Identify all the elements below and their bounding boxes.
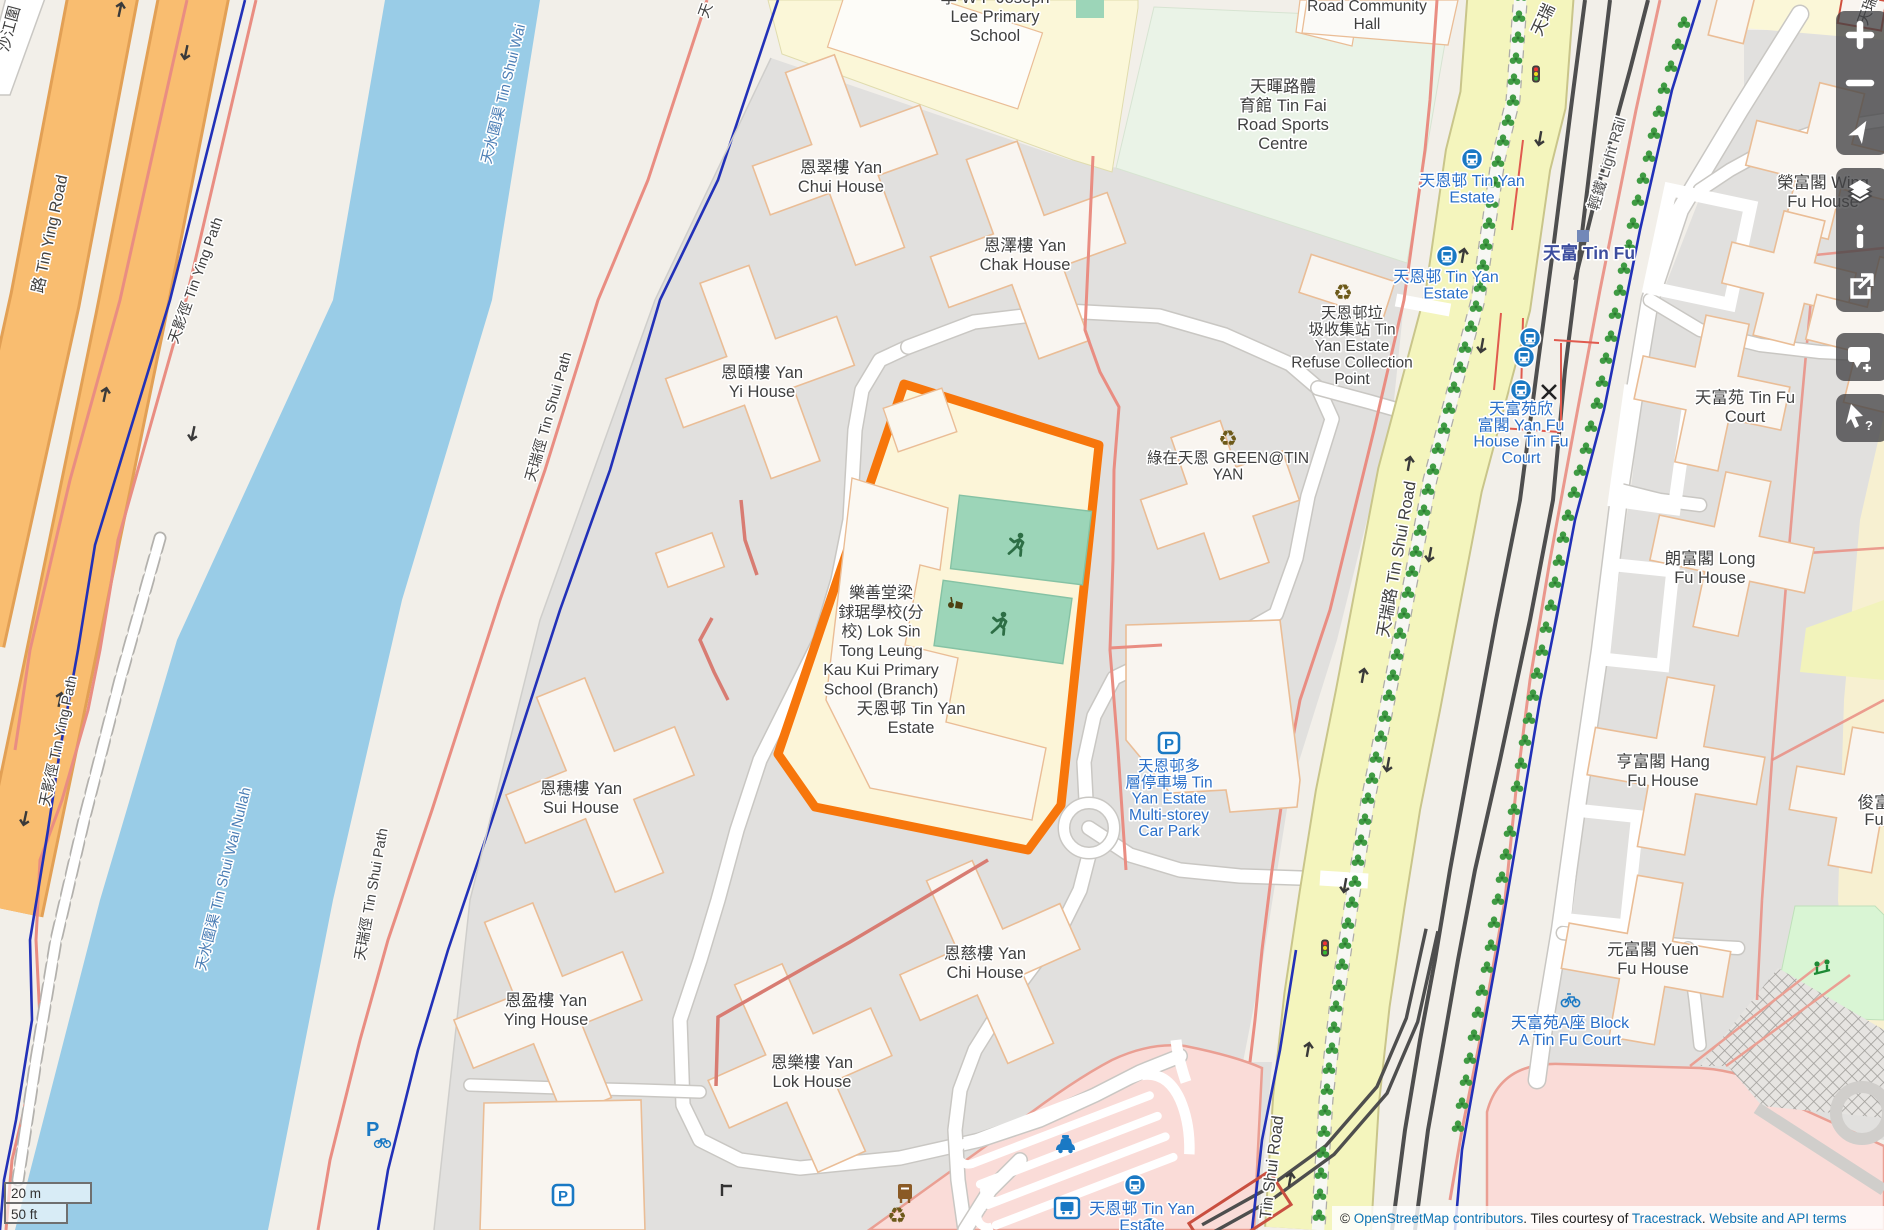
- svg-text:Road Community: Road Community: [1307, 0, 1427, 15]
- svg-text:50 ft: 50 ft: [11, 1207, 38, 1222]
- svg-text:Fu: Fu: [1864, 811, 1883, 829]
- svg-text:天暉路體: 天暉路體: [1250, 77, 1316, 96]
- svg-text:元富閣 Yuen: 元富閣 Yuen: [1607, 940, 1699, 959]
- svg-text:恩慈樓 Yan: 恩慈樓 Yan: [944, 944, 1026, 963]
- svg-text:Court: Court: [1501, 450, 1541, 467]
- svg-text:天富 Tin Fu: 天富 Tin Fu: [1543, 243, 1635, 263]
- svg-text:學 W F Joseph: 學 W F Joseph: [940, 0, 1049, 7]
- svg-text:Tong Leung: Tong Leung: [839, 643, 923, 660]
- svg-text:Estate: Estate: [1423, 286, 1468, 303]
- svg-text:恩澤樓 Yan: 恩澤樓 Yan: [984, 236, 1066, 255]
- svg-text:Point: Point: [1334, 371, 1370, 388]
- svg-text:Yan Estate: Yan Estate: [1315, 338, 1390, 355]
- svg-text:Fu House: Fu House: [1617, 960, 1689, 978]
- svg-text:天恩邨 Tin Yan: 天恩邨 Tin Yan: [1089, 1200, 1195, 1218]
- svg-text:恩盈樓 Yan: 恩盈樓 Yan: [505, 991, 587, 1010]
- svg-text:♻: ♻: [1333, 280, 1353, 305]
- svg-text:20 m: 20 m: [11, 1186, 41, 1201]
- svg-text:Estate: Estate: [888, 719, 935, 737]
- svg-text:Sui House: Sui House: [543, 799, 619, 817]
- svg-text:Lee Primary: Lee Primary: [951, 8, 1041, 26]
- svg-text:Multi-storey: Multi-storey: [1129, 807, 1209, 824]
- svg-text:♻: ♻: [1218, 426, 1238, 451]
- svg-text:俊富: 俊富: [1858, 793, 1884, 812]
- svg-text:Chi House: Chi House: [946, 964, 1023, 982]
- svg-text:?: ?: [1865, 418, 1873, 433]
- svg-text:Car Park: Car Park: [1138, 823, 1199, 840]
- svg-text:Hall: Hall: [1354, 16, 1381, 33]
- svg-text:層停車場 Tin: 層停車場 Tin: [1125, 773, 1212, 791]
- svg-text:Estate: Estate: [1119, 1218, 1164, 1230]
- svg-text:House Tin Fu: House Tin Fu: [1473, 434, 1568, 451]
- svg-text:天恩邨 Tin Yan: 天恩邨 Tin Yan: [857, 699, 966, 718]
- svg-text:Road Sports: Road Sports: [1237, 116, 1329, 134]
- svg-text:校) Lok Sin: 校) Lok Sin: [841, 623, 920, 641]
- svg-text:銶琚學校(分: 銶琚學校(分: [838, 603, 923, 621]
- svg-text:圾收集站 Tin: 圾收集站 Tin: [1308, 321, 1395, 339]
- svg-text:Fu House: Fu House: [1627, 772, 1699, 790]
- svg-text:♻: ♻: [887, 1203, 907, 1228]
- svg-text:富閣 Yan Fu: 富閣 Yan Fu: [1478, 416, 1565, 434]
- svg-text:Estate: Estate: [1449, 190, 1494, 207]
- svg-text:天恩邨多: 天恩邨多: [1138, 757, 1200, 775]
- svg-text:P: P: [366, 1119, 379, 1141]
- svg-text:© OpenStreetMap contributors.: © OpenStreetMap contributors. Tiles cour…: [1340, 1211, 1847, 1226]
- svg-text:School (Branch): School (Branch): [824, 682, 939, 699]
- svg-text:School: School: [970, 27, 1020, 45]
- svg-text:Fu House: Fu House: [1674, 569, 1746, 587]
- svg-text:朗富閣 Long: 朗富閣 Long: [1665, 549, 1756, 568]
- svg-text:YAN: YAN: [1213, 467, 1244, 484]
- svg-text:Chak House: Chak House: [980, 256, 1071, 274]
- svg-text:Court: Court: [1725, 408, 1766, 426]
- svg-text:恩穗樓 Yan: 恩穗樓 Yan: [540, 779, 622, 798]
- svg-text:Centre: Centre: [1258, 135, 1308, 153]
- svg-text:恩翠樓 Yan: 恩翠樓 Yan: [800, 158, 882, 177]
- svg-text:A Tin Fu Court: A Tin Fu Court: [1519, 1032, 1622, 1049]
- svg-text:天恩邨 Tin Yan: 天恩邨 Tin Yan: [1419, 172, 1525, 190]
- svg-text:恩頤樓 Yan: 恩頤樓 Yan: [721, 363, 803, 382]
- svg-text:Yan Estate: Yan Estate: [1132, 791, 1207, 808]
- svg-text:天恩邨垃: 天恩邨垃: [1321, 304, 1383, 322]
- svg-text:天富苑欣: 天富苑欣: [1489, 400, 1553, 418]
- svg-text:樂善堂梁: 樂善堂梁: [849, 584, 913, 602]
- svg-text:亨富閣 Hang: 亨富閣 Hang: [1616, 752, 1710, 771]
- svg-text:Lok House: Lok House: [773, 1073, 852, 1091]
- svg-text:Yi House: Yi House: [729, 383, 795, 401]
- svg-text:Ying House: Ying House: [504, 1011, 589, 1029]
- svg-text:綠在天恩 GREEN@TIN: 綠在天恩 GREEN@TIN: [1147, 449, 1309, 467]
- svg-text:Refuse Collection: Refuse Collection: [1291, 355, 1412, 372]
- svg-text:恩樂樓 Yan: 恩樂樓 Yan: [771, 1053, 853, 1072]
- svg-text:天恩邨 Tin Yan: 天恩邨 Tin Yan: [1393, 268, 1499, 286]
- svg-text:Chui House: Chui House: [798, 178, 884, 196]
- svg-text:育館 Tin Fai: 育館 Tin Fai: [1239, 96, 1326, 115]
- svg-text:天富苑 Tin Fu: 天富苑 Tin Fu: [1695, 388, 1795, 407]
- svg-text:天富苑A座 Block: 天富苑A座 Block: [1511, 1014, 1630, 1032]
- svg-text:Kau Kui Primary: Kau Kui Primary: [823, 662, 939, 679]
